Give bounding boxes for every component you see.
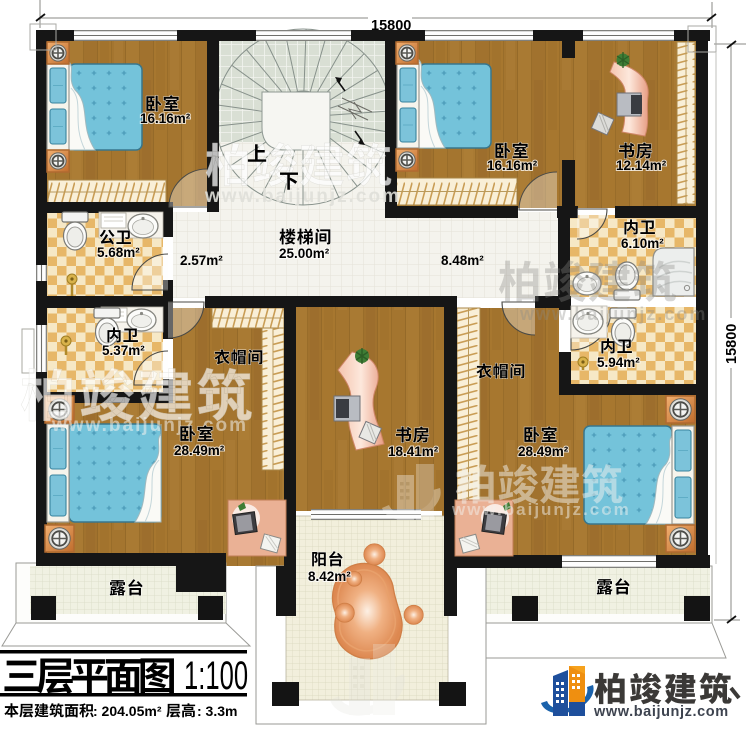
svg-text:12.14m²: 12.14m² — [616, 158, 667, 173]
svg-text:8.48m²: 8.48m² — [441, 253, 484, 268]
svg-text:28.49m²: 28.49m² — [518, 444, 569, 459]
svg-text:www.baijunjz.com: www.baijunjz.com — [519, 304, 707, 324]
svg-text:2.57m²: 2.57m² — [180, 253, 223, 268]
svg-text:28.49m²: 28.49m² — [174, 443, 225, 458]
svg-text:www.baijunjz.com: www.baijunjz.com — [204, 186, 401, 207]
svg-text:15800: 15800 — [724, 324, 740, 364]
svg-text:www.baijunjz.com: www.baijunjz.com — [451, 500, 631, 519]
svg-text:1:100: 1:100 — [184, 654, 248, 698]
svg-text:16.16m²: 16.16m² — [140, 111, 191, 126]
svg-text:8.42m²: 8.42m² — [308, 569, 351, 584]
svg-text:25.00m²: 25.00m² — [279, 246, 330, 261]
svg-text:www.baijunjz.com: www.baijunjz.com — [51, 415, 248, 436]
svg-text:5.37m²: 5.37m² — [102, 343, 145, 358]
svg-text:18.41m²: 18.41m² — [388, 444, 439, 459]
svg-text:5.68m²: 5.68m² — [97, 245, 140, 260]
svg-text:16.16m²: 16.16m² — [487, 158, 538, 173]
svg-text:: 3.3m: : 3.3m — [197, 703, 237, 719]
svg-text:15800: 15800 — [371, 18, 411, 34]
svg-text:www.baijunjz.com: www.baijunjz.com — [593, 704, 729, 720]
svg-text:5.94m²: 5.94m² — [597, 355, 640, 370]
svg-text:6.10m²: 6.10m² — [621, 236, 664, 251]
svg-text:: 204.05m²: : 204.05m² — [93, 703, 162, 719]
